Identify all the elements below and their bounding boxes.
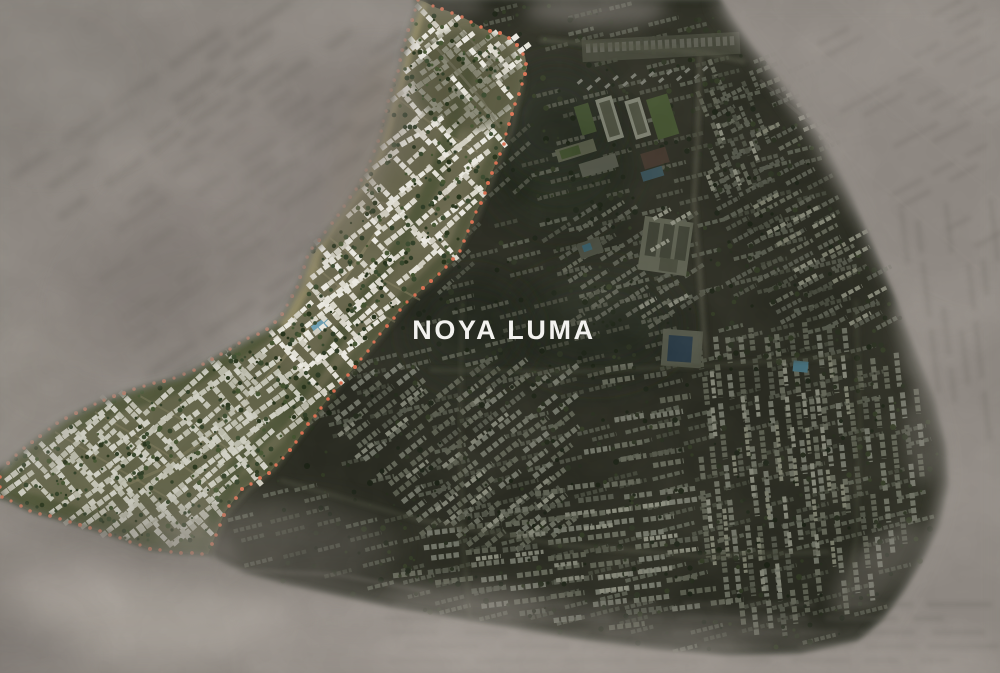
svg-text:NOYA LUMA: NOYA LUMA	[412, 315, 595, 345]
